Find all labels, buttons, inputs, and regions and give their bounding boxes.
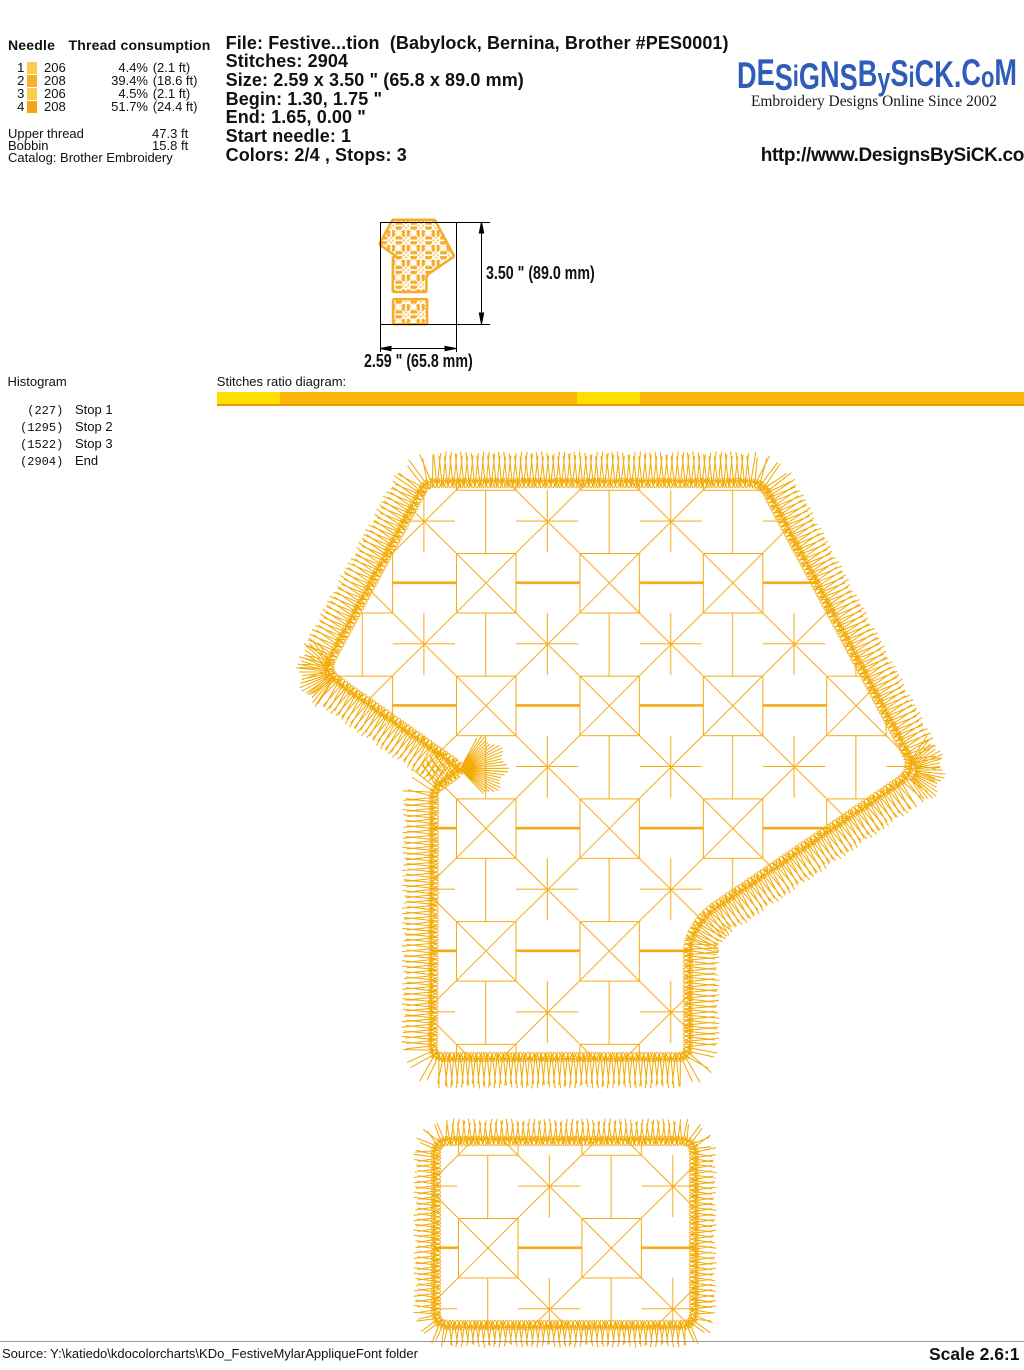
svg-text:Embroidery Designs Online Sinc: Embroidery Designs Online Since 2002	[751, 93, 997, 110]
svg-text:DESiGNSBySiCK.CoM: DESiGNSBySiCK.CoM	[737, 52, 1017, 98]
